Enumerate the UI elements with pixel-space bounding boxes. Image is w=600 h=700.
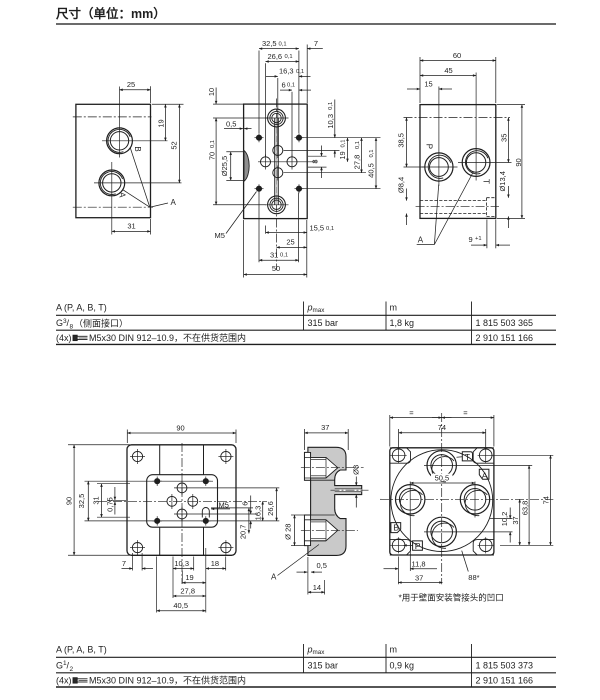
svg-text:10: 10 bbox=[207, 88, 216, 96]
svg-text:m: m bbox=[390, 303, 398, 313]
svg-text:0,1: 0,1 bbox=[326, 226, 334, 232]
svg-text:0,9 kg: 0,9 kg bbox=[390, 661, 415, 671]
svg-text:8: 8 bbox=[310, 159, 319, 163]
svg-text:37: 37 bbox=[321, 423, 329, 432]
svg-text:1 815 503 365: 1 815 503 365 bbox=[476, 318, 534, 328]
svg-text:T: T bbox=[482, 179, 491, 184]
svg-text:M5x30 DIN 912–10.9，不在供货范围内: M5x30 DIN 912–10.9，不在供货范围内 bbox=[89, 332, 246, 343]
svg-text:52: 52 bbox=[170, 141, 179, 149]
svg-text:Ø8: Ø8 bbox=[352, 465, 361, 475]
svg-text:7: 7 bbox=[314, 39, 318, 48]
svg-text:0,1: 0,1 bbox=[285, 54, 293, 60]
svg-text:*用于壁面安装管接头的凹口: *用于壁面安装管接头的凹口 bbox=[399, 593, 504, 603]
svg-text:90: 90 bbox=[176, 423, 184, 432]
svg-text:Ø8,4: Ø8,4 bbox=[396, 177, 405, 193]
svg-text:0,1: 0,1 bbox=[210, 140, 216, 148]
svg-text:+1: +1 bbox=[475, 236, 482, 242]
svg-text:A: A bbox=[482, 470, 488, 480]
svg-text:Ø13,4: Ø13,4 bbox=[498, 171, 507, 191]
svg-text:90: 90 bbox=[65, 497, 74, 505]
svg-text:A: A bbox=[418, 235, 424, 244]
svg-text:A: A bbox=[171, 198, 177, 207]
svg-text:B: B bbox=[393, 522, 399, 532]
svg-text:M5: M5 bbox=[215, 231, 225, 240]
svg-text:2 910 151 166: 2 910 151 166 bbox=[476, 675, 534, 685]
svg-text:1 815 503 373: 1 815 503 373 bbox=[476, 661, 534, 671]
svg-text:M5x30 DIN 912–10.9，不在供货范围内: M5x30 DIN 912–10.9，不在供货范围内 bbox=[89, 674, 246, 685]
svg-text:60: 60 bbox=[453, 51, 461, 60]
svg-text:0,1: 0,1 bbox=[279, 41, 287, 47]
svg-text:31: 31 bbox=[127, 221, 135, 230]
svg-text:19: 19 bbox=[338, 151, 347, 159]
svg-text:0,5: 0,5 bbox=[226, 119, 236, 128]
svg-text:P: P bbox=[424, 144, 433, 149]
svg-text:B: B bbox=[133, 146, 142, 151]
svg-text:315 bar: 315 bar bbox=[308, 661, 339, 671]
svg-text:10,3: 10,3 bbox=[174, 559, 189, 568]
svg-text:A (P, A, B, T): A (P, A, B, T) bbox=[56, 645, 107, 655]
svg-text:40,5: 40,5 bbox=[173, 601, 188, 610]
svg-text:26,6: 26,6 bbox=[268, 52, 283, 61]
svg-text:Ø25,5: Ø25,5 bbox=[220, 156, 229, 176]
svg-text:74: 74 bbox=[438, 423, 446, 432]
svg-text:37: 37 bbox=[415, 573, 423, 582]
svg-text:0,1: 0,1 bbox=[296, 69, 304, 75]
svg-text:G: G bbox=[56, 661, 63, 671]
svg-text:(4x): (4x) bbox=[56, 333, 72, 343]
svg-text:0,1: 0,1 bbox=[287, 83, 295, 89]
svg-text:(4x): (4x) bbox=[56, 675, 72, 685]
svg-text:P: P bbox=[415, 541, 421, 551]
svg-text:尺寸（单位：mm）: 尺寸（单位：mm） bbox=[56, 6, 166, 21]
svg-text:19: 19 bbox=[156, 119, 165, 127]
svg-text:A: A bbox=[118, 192, 127, 198]
svg-text:74: 74 bbox=[541, 496, 550, 504]
svg-text:10,3: 10,3 bbox=[326, 114, 335, 129]
svg-text:（侧面接口）: （侧面接口） bbox=[74, 317, 128, 328]
svg-text:20,7: 20,7 bbox=[238, 524, 247, 539]
svg-text:40,5: 40,5 bbox=[367, 163, 376, 178]
svg-text:6: 6 bbox=[241, 502, 250, 506]
svg-text:m: m bbox=[390, 645, 398, 655]
svg-text:0,1: 0,1 bbox=[355, 141, 361, 149]
svg-text:11,8: 11,8 bbox=[412, 560, 426, 569]
svg-text:2: 2 bbox=[70, 666, 74, 673]
svg-text:7: 7 bbox=[122, 559, 126, 568]
svg-text:19: 19 bbox=[185, 573, 193, 582]
svg-text:A (P, A, B, T): A (P, A, B, T) bbox=[56, 303, 107, 313]
svg-text:26,6: 26,6 bbox=[266, 501, 275, 516]
svg-text:1,8 kg: 1,8 kg bbox=[390, 318, 415, 328]
svg-text:315 bar: 315 bar bbox=[308, 318, 339, 328]
svg-text:90: 90 bbox=[514, 158, 523, 166]
svg-text:63,8: 63,8 bbox=[520, 501, 529, 516]
svg-text:0,5: 0,5 bbox=[317, 561, 327, 570]
svg-text:27,8: 27,8 bbox=[353, 155, 362, 170]
svg-text:T: T bbox=[465, 452, 471, 462]
svg-text:16,3: 16,3 bbox=[279, 67, 294, 76]
svg-text:18: 18 bbox=[211, 559, 219, 568]
svg-text:9: 9 bbox=[469, 235, 473, 244]
svg-text:15,5: 15,5 bbox=[310, 224, 325, 233]
svg-text:14: 14 bbox=[313, 583, 321, 592]
svg-text:=: = bbox=[409, 409, 414, 418]
svg-text:88*: 88* bbox=[468, 573, 479, 582]
svg-text:A: A bbox=[271, 572, 277, 581]
svg-text:16,3: 16,3 bbox=[254, 506, 263, 521]
svg-text:2 910 151 166: 2 910 151 166 bbox=[476, 333, 534, 343]
svg-text:8: 8 bbox=[70, 324, 74, 331]
svg-text:32,5: 32,5 bbox=[262, 39, 277, 48]
svg-text:50: 50 bbox=[272, 264, 280, 273]
svg-text:27,8: 27,8 bbox=[180, 586, 195, 595]
svg-text:15: 15 bbox=[424, 79, 432, 88]
svg-text:45: 45 bbox=[444, 66, 452, 75]
svg-text:25: 25 bbox=[127, 80, 135, 89]
svg-text:31: 31 bbox=[270, 250, 278, 259]
svg-text:max: max bbox=[313, 649, 326, 656]
svg-text:70: 70 bbox=[208, 152, 217, 160]
svg-text:31: 31 bbox=[92, 496, 101, 504]
svg-text:max: max bbox=[313, 307, 326, 314]
svg-text:=: = bbox=[463, 409, 468, 418]
svg-text:32,5: 32,5 bbox=[77, 494, 86, 509]
svg-text:25: 25 bbox=[286, 237, 294, 246]
svg-text:50,5: 50,5 bbox=[435, 473, 450, 482]
svg-text:0,1: 0,1 bbox=[340, 139, 346, 147]
svg-text:0,1: 0,1 bbox=[369, 149, 375, 157]
svg-text:G: G bbox=[56, 318, 63, 328]
svg-text:35: 35 bbox=[500, 134, 509, 142]
svg-text:0,1: 0,1 bbox=[280, 253, 288, 259]
svg-text:0,75: 0,75 bbox=[106, 497, 115, 512]
svg-text:10,2: 10,2 bbox=[500, 512, 509, 527]
svg-text:37: 37 bbox=[511, 516, 520, 524]
svg-text:38,5: 38,5 bbox=[396, 133, 405, 148]
svg-text:Ø 28: Ø 28 bbox=[284, 524, 293, 540]
svg-text:0,1: 0,1 bbox=[328, 102, 334, 110]
svg-text:6: 6 bbox=[282, 80, 286, 89]
